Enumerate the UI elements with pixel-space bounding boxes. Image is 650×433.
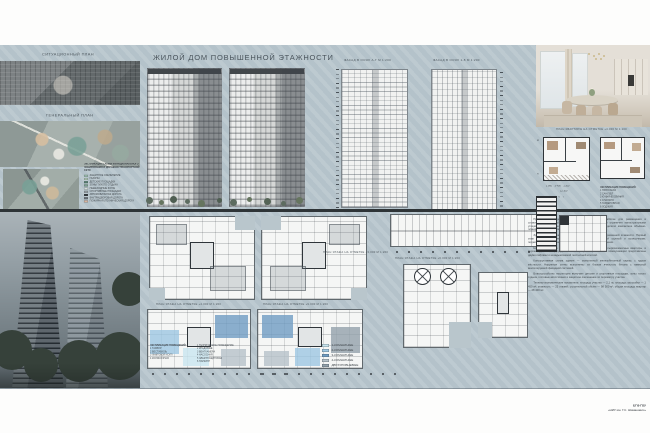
- circular-tower-plan: [440, 268, 457, 285]
- apartment-zone: [215, 315, 248, 338]
- zoning-scheme-drawing: [3, 169, 79, 209]
- facade-right-label: ФАСАД В ОСЯХ 1-8 М 1:200: [433, 59, 480, 63]
- room-block: [329, 224, 360, 245]
- situation-plan-map: [0, 61, 140, 105]
- chair: [562, 101, 572, 114]
- situation-plan-label: СИТУАЦИОННЫЙ ПЛАН: [42, 53, 94, 58]
- legend-swatch: [84, 200, 88, 202]
- apartment-zone: [264, 351, 289, 366]
- plan-notch: [261, 216, 281, 230]
- board-top-half: СИТУАЦИОННЫЙ ПЛАН ГЕНЕРАЛЬНЫЙ ПЛАН ЭКСПЛ…: [0, 45, 650, 210]
- window: [540, 51, 566, 109]
- zoning-legend: ЗАЩИТНОЕ ОЗЕЛЕНЕНИЕ ГАЗОНЫ ДЕТСКИЕ ПЛОЩА…: [84, 174, 134, 203]
- plan-notch: [351, 288, 367, 300]
- elevation-ticks: [500, 69, 503, 210]
- furniture: [549, 167, 558, 175]
- floor-plan-f: [478, 272, 528, 338]
- furniture: [547, 141, 559, 149]
- stair-section-drawing: [559, 215, 607, 252]
- legend-swatch: [84, 194, 88, 196]
- plan-caption: ПЛАН ЭТАЖА НА ОТМЕТКЕ +3.000 М 1:200: [323, 251, 388, 255]
- explication-item: 6 ПАРКИНГ: [197, 360, 253, 363]
- tower-shadow-side: [282, 69, 304, 206]
- stair-lift-core: [298, 327, 323, 347]
- flowers: [589, 89, 595, 96]
- circular-tower-plan: [414, 268, 431, 285]
- wall: [601, 160, 632, 161]
- apartment-plan-right: [600, 137, 645, 179]
- room-block: [210, 266, 245, 291]
- plan-notch: [235, 216, 255, 230]
- plan-caption: ПЛАН ЭТАЖА НА ОТМЕТКЕ +9.000 М 1:200: [263, 303, 328, 307]
- facade-left-label: ФАСАД В ОСЯХ А-Г М 1:200: [344, 59, 391, 63]
- plan-caption: ПЛАН ЭТАЖА НА ОТМЕТКЕ +4.000 М 1:200: [156, 303, 221, 307]
- trees-row: [146, 197, 153, 204]
- axis-bubbles-row: [152, 373, 154, 375]
- axis-letter-bottom: А: [537, 173, 539, 176]
- legend-swatch: [322, 354, 329, 357]
- furniture: [576, 142, 586, 149]
- facade-core-strip: [372, 70, 378, 207]
- axis-bubbles-row: [262, 373, 264, 375]
- interior-render: [536, 45, 650, 127]
- legend-label: 3-КОМНАТНЫЕ: [332, 354, 354, 357]
- stair-lift-core: [497, 292, 509, 314]
- legend-label: СПОРТИВНЫЕ ПЛОЩАДКИ: [90, 190, 122, 192]
- chandelier: [588, 53, 590, 55]
- axis-bubbles-row: [396, 251, 398, 253]
- wall: [544, 161, 576, 162]
- facade-core-strip: [461, 70, 467, 210]
- annotation-paragraph: Конструктивная схема здания — монолитный…: [528, 260, 646, 271]
- legend-swatch: [84, 184, 88, 186]
- explication-item: 4 КОЛЯСОЧНАЯ: [150, 357, 190, 360]
- floor-explication-a: ЭКСПЛИКАЦИЯ ПОМЕЩЕНИЙ: 1 ТАМБУР 2 ВЕСТИБ…: [150, 344, 190, 360]
- floor-plan-circles: [403, 264, 471, 348]
- tower-shadow-side: [199, 69, 221, 206]
- legend-label: ЗОНЫ ТИХОГО ОТДЫХА: [90, 184, 118, 186]
- room-block: [270, 266, 305, 291]
- section-shaft: [560, 216, 569, 225]
- legend-label: 2-КОМНАТНЫЕ: [332, 349, 354, 352]
- building-section-drawing: [536, 196, 557, 252]
- legend-swatch: [84, 178, 88, 180]
- legend-swatch: [84, 187, 88, 189]
- apartment-type-legend: 1-КОМНАТНЫЕ 2-КОМНАТНЫЕ 3-КОМНАТНЫЕ 4-КО…: [322, 343, 358, 368]
- apartment-zone: [262, 315, 293, 338]
- legend-label: ДВУХУРОВНЕВЫЕ: [332, 364, 359, 367]
- stamp-line-2: «НИУ им. Г.С. Шиманович»: [558, 409, 646, 414]
- legend-label: ГАЗОНЫ: [90, 178, 100, 180]
- floor-plan-b: [261, 216, 367, 300]
- legend-swatch: [322, 364, 329, 367]
- tree: [112, 272, 140, 306]
- apartment-zone: [295, 348, 320, 365]
- apartment-plan-left: [543, 137, 590, 181]
- title-stamp: БГФ ГОУ «НИУ им. Г.С. Шиманович»: [558, 404, 646, 413]
- facade-drawing-right: [431, 69, 497, 210]
- apartment-plan-label: ПЛАН КВАРТИРЫ НА ОТМЕТКЕ +4.000 М 1:100: [556, 128, 627, 132]
- balcony-hatch: [544, 175, 589, 180]
- general-plan-drawing: [0, 121, 140, 167]
- tower-render-right: [229, 68, 305, 207]
- oven: [628, 75, 634, 86]
- wall: [565, 138, 566, 162]
- rug: [544, 115, 642, 127]
- floor-explication-b: 1 ТЕХНИЧЕСКОЕ ПОМЕЩЕНИЕ 2 КЛАДОВЫЕ 3 ВЕН…: [197, 344, 253, 363]
- legend-label: ВНУТРИДВОРОВАЯ ДОРОГА: [90, 197, 123, 199]
- plan-notch: [149, 288, 165, 300]
- presentation-board: СИТУАЦИОННЫЙ ПЛАН ГЕНЕРАЛЬНЫЙ ПЛАН ЭКСПЛ…: [0, 0, 650, 433]
- legend-label: 4-КОМНАТНЫЕ: [332, 359, 354, 362]
- legend-swatch: [84, 175, 88, 177]
- plan-caption: ПЛАН ЭТАЖА НА ОТМЕТКЕ +6.000 М 1:200: [395, 257, 460, 261]
- furniture: [632, 143, 641, 151]
- legend-swatch: [322, 349, 329, 352]
- legend-row: ДВУХУРОВНЕВЫЕ: [322, 363, 358, 368]
- annotation-paragraph: Технико-экономические показатели: площад…: [528, 282, 646, 293]
- render-vignette: [0, 363, 140, 389]
- floor-plan-a: [149, 216, 255, 300]
- legend-swatch: [322, 359, 329, 362]
- legend-label: ПОЖАРНАЯ (ТЕХНИЧЕСКАЯ) ДОРОГА: [90, 200, 134, 202]
- legend-swatch: [84, 181, 88, 183]
- legend-label: 1-КОМНАТНЫЕ: [332, 344, 354, 347]
- apartment-explication: ЭКСПЛИКАЦИЯ ПОМЕЩЕНИЙ: 1 ПРИХОЖАЯ 2 САНУ…: [600, 186, 648, 209]
- legend-label: ДЕТСКИЕ ПЛОЩАДКИ: [90, 181, 116, 183]
- zoning-legend-title: ЭКСПЛИКАЦИЯ СХЕМЫ ФУНКЦИОНАЛЬНОГО ЗОНИРО…: [84, 163, 140, 172]
- legend-label: АВТОМОБИЛЬНАЯ ДОРОГА: [90, 194, 122, 196]
- exterior-render: [0, 212, 140, 389]
- tower-render-left: [147, 68, 222, 207]
- dimension-total: 12 100: [560, 190, 567, 193]
- furniture: [630, 167, 639, 173]
- plan-notch: [478, 322, 492, 338]
- wall: [621, 138, 622, 161]
- dimension-row: 1 900 3 400 1 200: [546, 185, 569, 188]
- legend-label: ПЕШЕХОДНЫЕ ЗОНЫ: [90, 187, 115, 189]
- long-building-plan: [390, 214, 542, 247]
- elevation-ticks: [336, 69, 339, 208]
- legend-swatch: [84, 191, 88, 193]
- general-plan-label: ГЕНЕРАЛЬНЫЙ ПЛАН: [46, 114, 93, 119]
- plan-notch: [449, 322, 471, 348]
- legend-label: ЗАЩИТНОЕ ОЗЕЛЕНЕНИЕ: [90, 174, 121, 176]
- board-title: ЖИЛОЙ ДОМ ПОВЫШЕННОЙ ЭТАЖНОСТИ: [153, 53, 334, 62]
- annotation-paragraph: Благоустройство территории включает детс…: [528, 273, 646, 280]
- legend-swatch: [84, 197, 88, 199]
- furniture: [604, 142, 614, 149]
- legend-swatch: [322, 344, 329, 347]
- facade-drawing-left: [341, 69, 408, 208]
- legend-row: ПОЖАРНАЯ (ТЕХНИЧЕСКАЯ) ДОРОГА: [84, 200, 134, 203]
- room-block: [156, 224, 187, 245]
- axis-letter-top: Д: [537, 139, 539, 142]
